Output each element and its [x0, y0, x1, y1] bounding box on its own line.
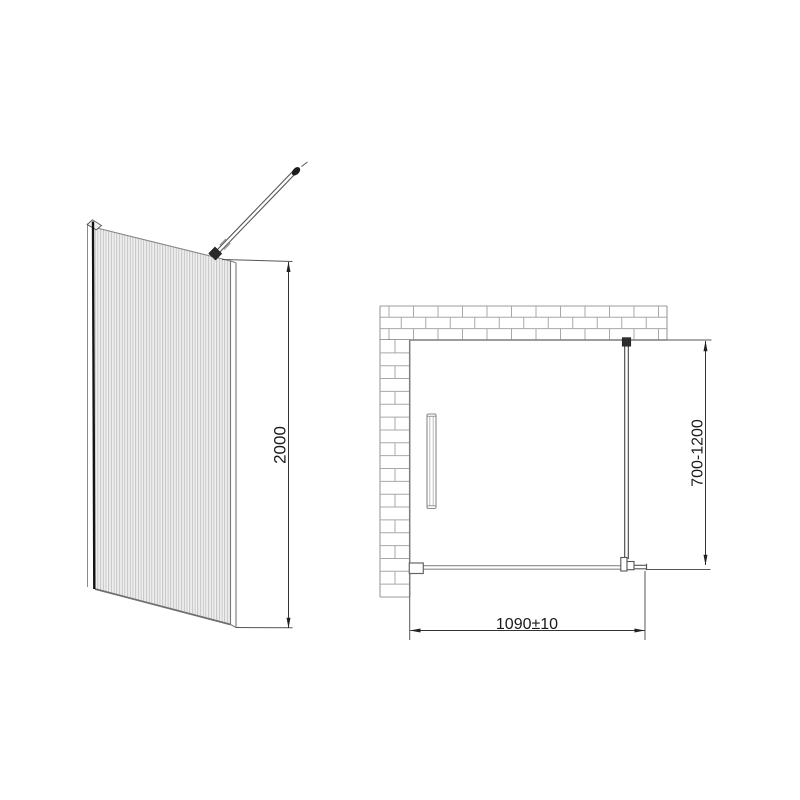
support-bar-plan — [621, 338, 647, 571]
arrow-up — [704, 341, 708, 352]
drawing-canvas: 2000 — [0, 0, 800, 800]
support-bar-tip-tick — [302, 162, 308, 167]
arrow-left — [410, 629, 421, 633]
support-bar — [209, 162, 308, 260]
panel-foot — [621, 558, 627, 572]
support-bar-end-cap — [290, 165, 302, 177]
dimension-depth-label: 700-1200 — [690, 419, 707, 487]
dimension-width-label: 1090±10 — [496, 616, 558, 633]
panel-clamp — [627, 562, 634, 570]
perspective-view: 2000 — [87, 162, 307, 628]
arrow-right — [635, 629, 646, 633]
arrow-down — [287, 618, 291, 629]
glass-left-edge — [93, 222, 94, 590]
dimension-height: 2000 — [222, 260, 293, 629]
side-wall — [380, 306, 410, 597]
handle-bar — [427, 414, 436, 509]
dimension-depth: 700-1200 — [647, 340, 712, 570]
dimension-width: 1090±10 — [410, 571, 645, 640]
wall-profile-plan — [409, 563, 423, 574]
back-wall — [380, 306, 667, 340]
plan-view: 1090±10 700-1200 — [380, 306, 712, 640]
dimension-height-label: 2000 — [271, 426, 290, 464]
glass-panel-fluted — [95, 228, 230, 625]
arrow-up — [287, 262, 291, 273]
technical-drawing-page: 2000 — [0, 0, 800, 800]
panel-right-edge — [231, 261, 237, 628]
wall-bracket — [622, 338, 631, 347]
glass-panel-plan — [423, 566, 621, 570]
arrow-down — [704, 555, 708, 566]
